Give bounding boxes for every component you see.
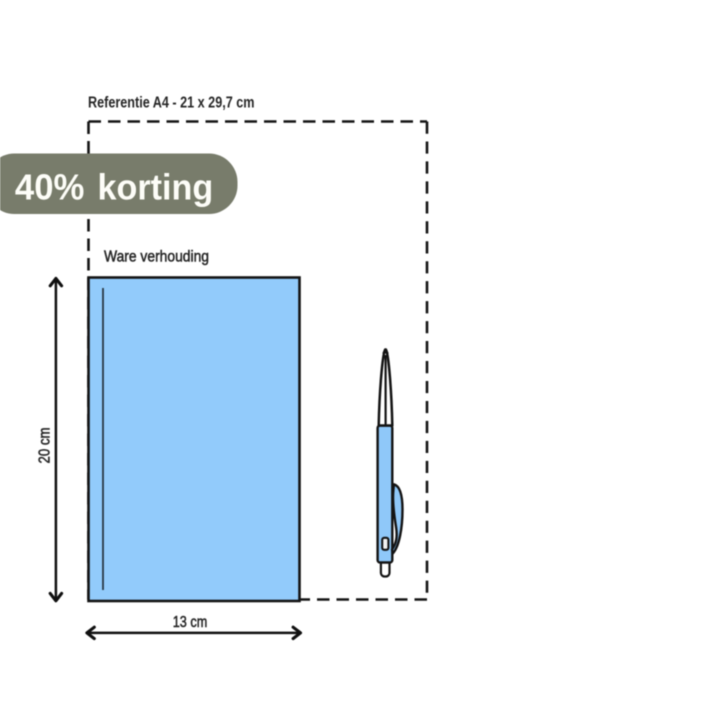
svg-text:13 cm: 13 cm [173, 614, 208, 631]
svg-text:Ware verhouding: Ware verhouding [104, 249, 209, 266]
svg-text:Referentie A4 - 21 x 29,7 cm: Referentie A4 - 21 x 29,7 cm [88, 95, 255, 112]
svg-text:40%: 40% [15, 167, 85, 208]
svg-text:20 cm: 20 cm [37, 428, 54, 464]
svg-text:korting: korting [98, 167, 214, 208]
